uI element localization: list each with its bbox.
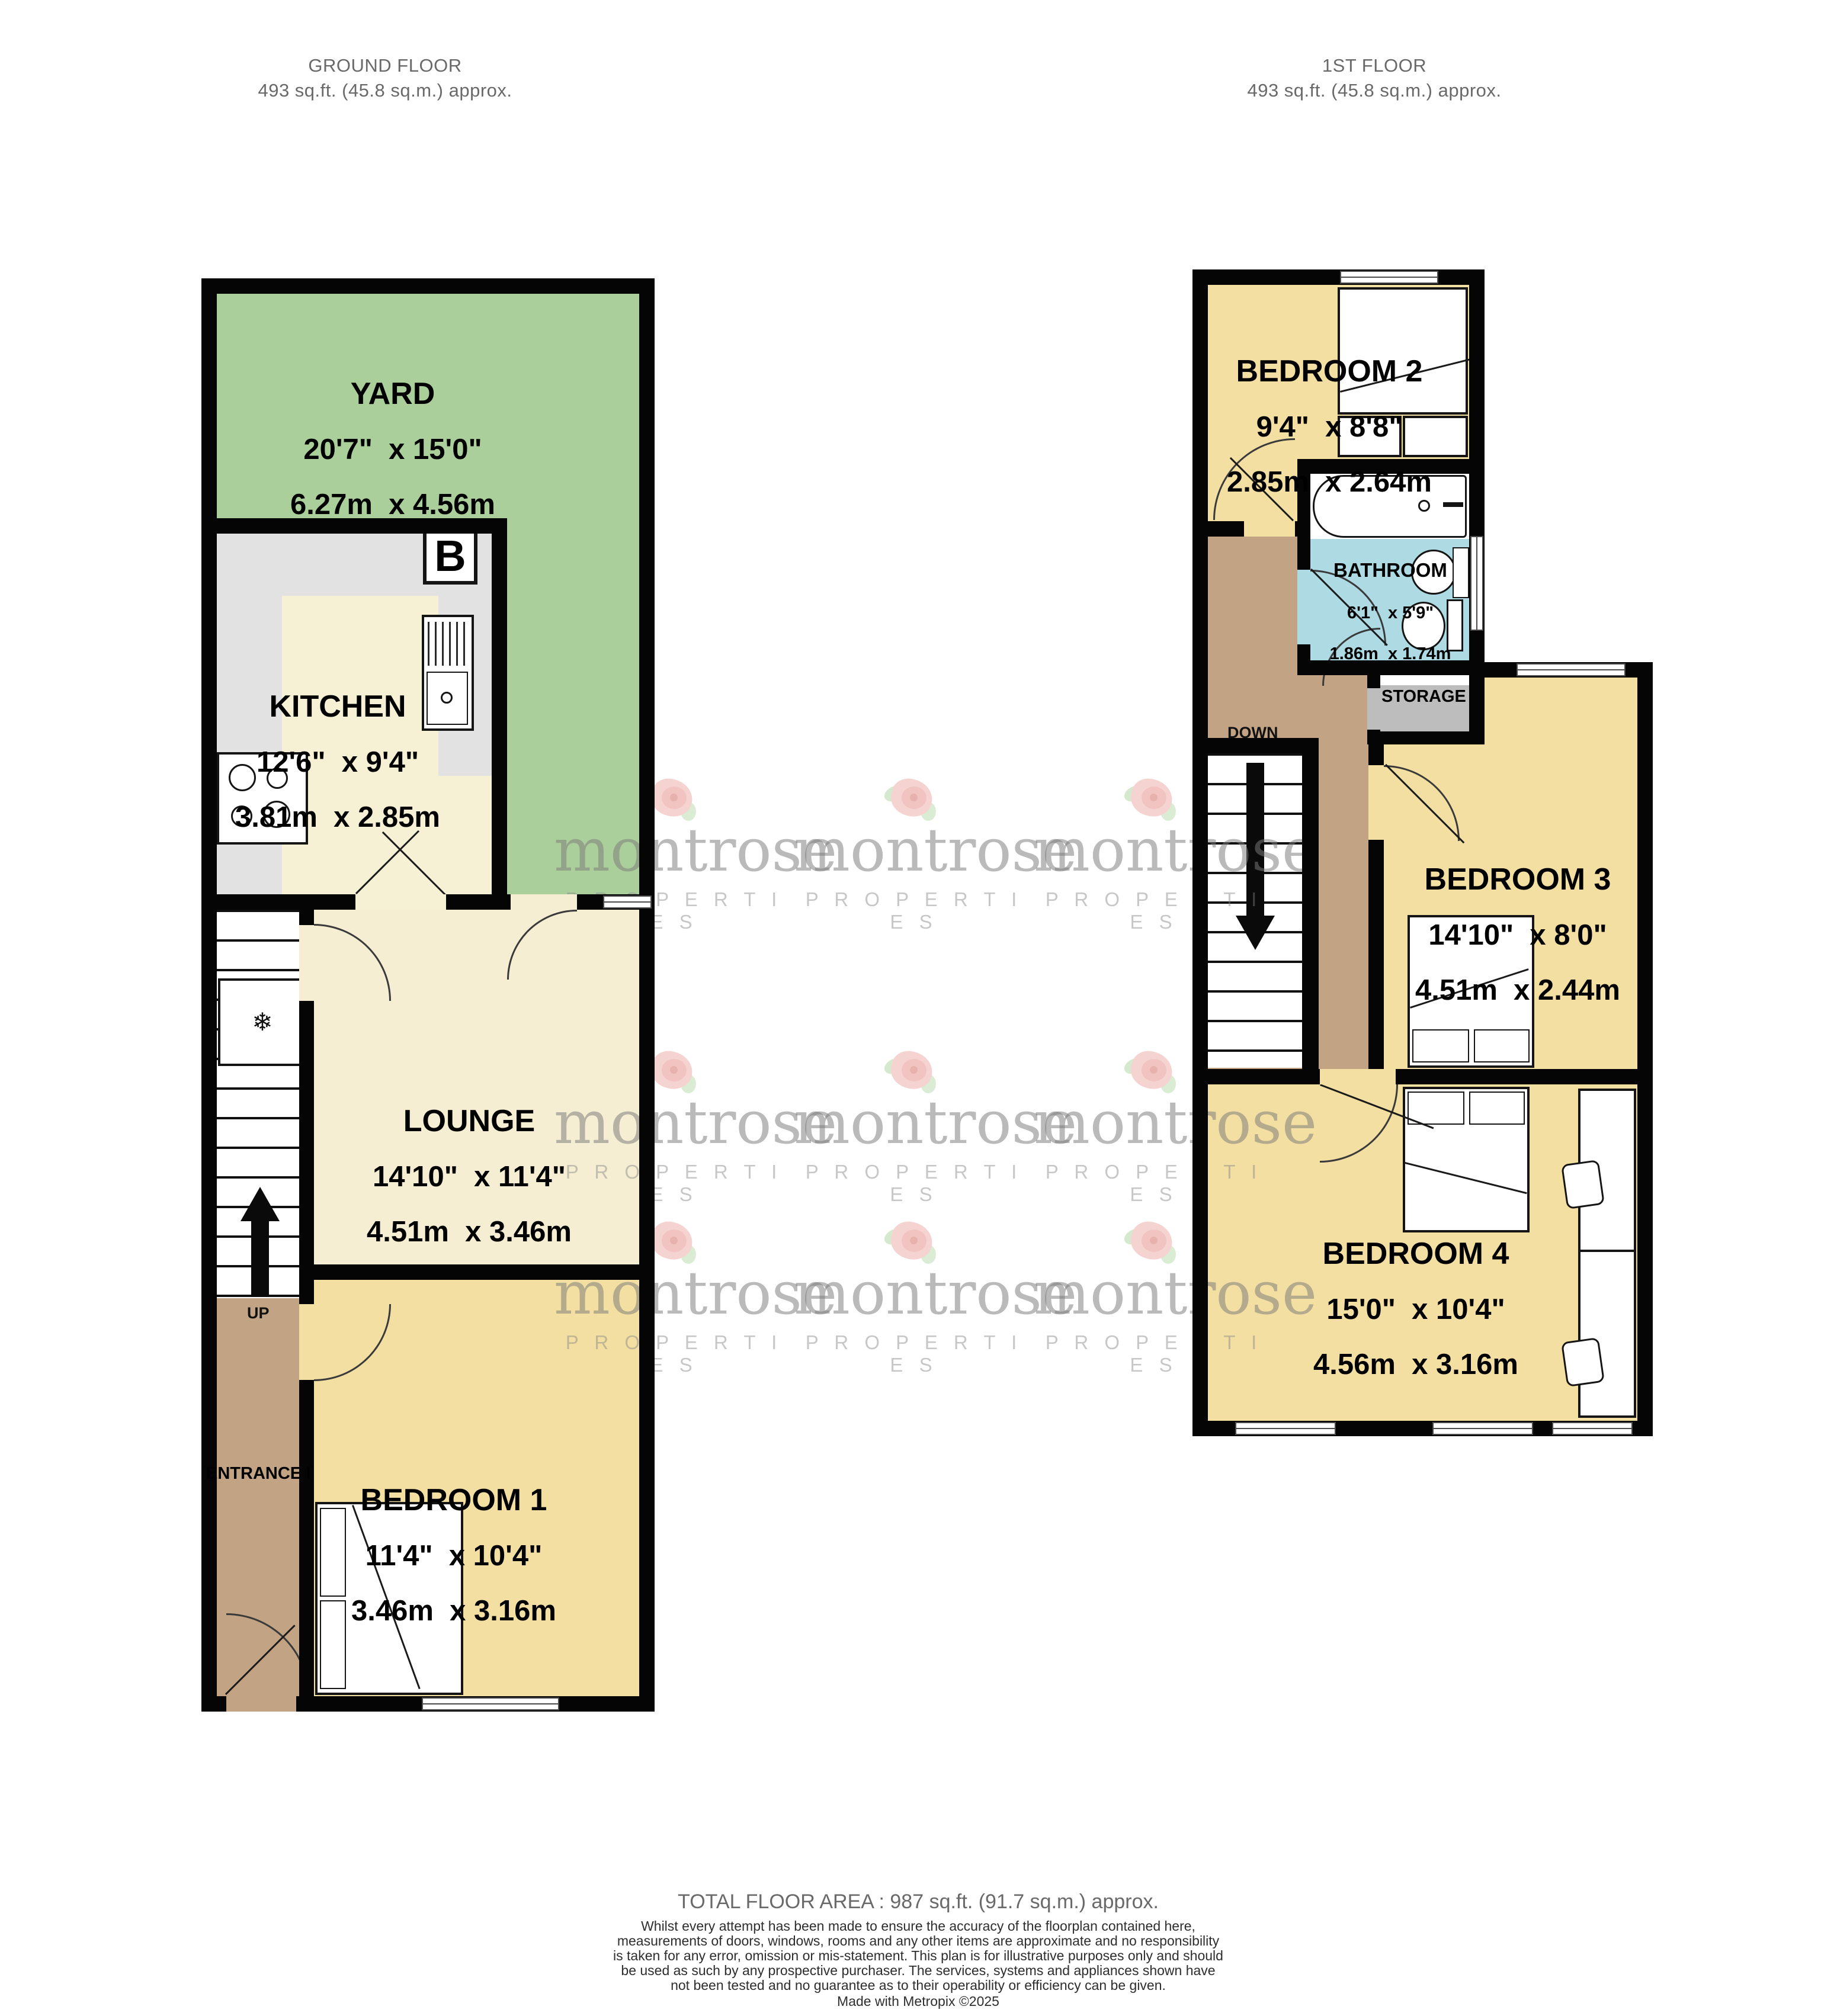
bedroom4-window: [1432, 1422, 1533, 1435]
sink-backsplash: [1453, 547, 1469, 598]
bedroom3-label: BEDROOM 3 14'10" x 8'0" 4.51m x 2.44m: [1415, 841, 1620, 1029]
pillow-icon: [1474, 1029, 1530, 1062]
kitchen-lounge-door-gap: [355, 894, 446, 910]
first-floor-area: 493 sq.ft. (45.8 sq.m.) approx.: [1247, 78, 1501, 103]
rose-logo-icon: [884, 1213, 941, 1270]
bedroom2-door-gap: [1244, 521, 1295, 537]
chair-icon: [1561, 1337, 1605, 1387]
wall: [1367, 731, 1485, 744]
bedroom1-door-gap: [299, 1304, 314, 1380]
yard-label: YARD 20'7" x 15'0" 6.27m x 4.56m: [290, 355, 495, 543]
wall: [299, 910, 314, 1696]
down-arrow-head-icon: [1236, 916, 1275, 950]
rose-logo-icon: [884, 770, 941, 827]
wall: [201, 278, 217, 1712]
bedroom4-window: [1552, 1422, 1633, 1435]
wall: [1192, 1069, 1653, 1084]
rose-logo-icon: [884, 1042, 941, 1099]
ground-floor-area: 493 sq.ft. (45.8 sq.m.) approx.: [258, 78, 512, 103]
first-floor-title: 1ST FLOOR: [1247, 53, 1501, 78]
entrance-hall-label: ENTRANCE HALL: [206, 1464, 309, 1484]
wall: [1192, 269, 1485, 285]
kitchen-label: KITCHEN 12'6" x 9'4" 3.81m x 2.85m: [235, 668, 440, 856]
wall: [201, 278, 655, 294]
bedroom3-door-gap: [1368, 765, 1384, 840]
up-label: UP: [247, 1304, 270, 1322]
bedroom1-label: BEDROOM 1 11'4" x 10'4" 3.46m x 3.16m: [351, 1462, 556, 1649]
pillow-icon: [1412, 1029, 1469, 1062]
total-floor-area: TOTAL FLOOR AREA : 987 sq.ft. (91.7 sq.m…: [678, 1890, 1159, 1914]
floorplan-page: GROUND FLOOR 493 sq.ft. (45.8 sq.m.) app…: [0, 0, 1837, 2016]
pillow-icon: [1469, 1092, 1525, 1125]
fridge-box: ❄: [218, 978, 307, 1066]
pillow-icon: [320, 1600, 346, 1689]
lounge-door-gap: [299, 925, 314, 1001]
up-arrow-head-icon: [241, 1187, 280, 1221]
pillow-icon: [1408, 1092, 1464, 1125]
fridge-snowflake-icon: ❄: [252, 1010, 272, 1035]
chair-icon: [1561, 1160, 1605, 1209]
bedroom1-window: [422, 1697, 559, 1710]
metropix-credit: Made with Metropix ©2025: [837, 1993, 999, 2009]
rose-logo-icon: [1124, 770, 1181, 827]
bathtub-tap-icon: [1443, 502, 1463, 507]
wall: [1302, 753, 1319, 1084]
down-arrow-icon: [1246, 763, 1264, 916]
bathroom-window: [1470, 536, 1483, 631]
down-label: DOWN: [1227, 724, 1278, 742]
rose-logo-icon: [1124, 1213, 1181, 1270]
storage-door-gap: [1367, 688, 1380, 730]
storage-label: STORAGE: [1381, 687, 1471, 707]
bedroom3-window: [1517, 663, 1626, 676]
desk-divider: [1578, 1250, 1636, 1252]
bathroom-door-gap: [1297, 570, 1310, 644]
up-arrow-icon: [251, 1221, 269, 1297]
rose-logo-icon: [1124, 1042, 1181, 1099]
wall: [1192, 269, 1208, 1436]
bedroom2-label: BEDROOM 2 9'4" x 8'8" 2.85m x 2.64m: [1227, 333, 1432, 521]
bedroom4-door-gap: [1320, 1069, 1396, 1084]
wall: [492, 518, 507, 910]
ground-floor-header: GROUND FLOOR 493 sq.ft. (45.8 sq.m.) app…: [258, 53, 512, 103]
ground-floor-title: GROUND FLOOR: [258, 53, 512, 78]
sink-drainer-icon: [428, 622, 468, 666]
bathroom-label: BATHROOM 6'1" x 5'9" 1.86m x 1.74m: [1330, 538, 1451, 686]
lounge-label: LOUNGE 14'10" x 11'4" 4.51m x 3.46m: [367, 1083, 572, 1270]
first-floor-header: 1ST FLOOR 493 sq.ft. (45.8 sq.m.) approx…: [1247, 53, 1501, 103]
sink-drain-icon: [441, 692, 453, 704]
bedroom4-window: [1235, 1422, 1336, 1435]
disclaimer-text: Whilst every attempt has been made to en…: [613, 1919, 1223, 1993]
wall: [639, 278, 655, 1712]
bedroom4-label: BEDROOM 4 15'0" x 10'4" 4.56m x 3.16m: [1313, 1215, 1518, 1403]
landing-floor: [1208, 537, 1297, 675]
wall: [1637, 662, 1653, 1436]
front-door-gap: [226, 1696, 296, 1712]
lounge-window: [603, 895, 652, 909]
bedroom2-window: [1340, 271, 1438, 284]
yard-door-gap: [511, 894, 577, 910]
pillow-icon: [320, 1508, 346, 1597]
